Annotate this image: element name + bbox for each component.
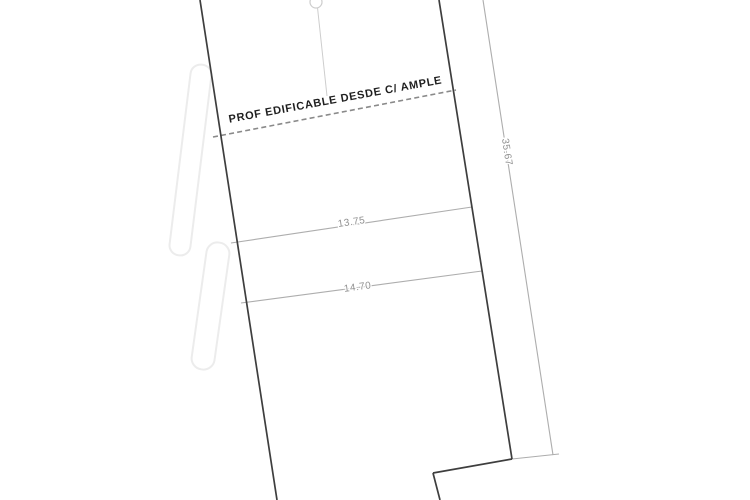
dimension-label-right-depth: 35.67: [499, 138, 514, 167]
label-balloon-circle: [310, 0, 322, 8]
dimension-label-lower-width: 14.70: [343, 280, 372, 295]
vegetation-outline-upper: [168, 63, 212, 256]
notch-witness-line: [512, 454, 559, 459]
parcel-boundary-step-top: [433, 459, 512, 473]
site-plan-drawing: PROF EDIFICABLE DESDE C/ AMPLE 13.75 14.…: [0, 0, 750, 500]
depth-dimension-line: [483, 0, 553, 455]
parcel-boundary-right: [439, 0, 512, 459]
leader-line: [317, 3, 327, 96]
site-plan-canvas: PROF EDIFICABLE DESDE C/ AMPLE 13.75 14.…: [0, 0, 750, 500]
buildable-depth-label: PROF EDIFICABLE DESDE C/ AMPLE: [228, 74, 443, 125]
parcel-boundary-step-side: [433, 473, 440, 500]
vegetation-outline-lower: [190, 241, 231, 371]
dimension-label-upper-width: 13.75: [337, 215, 366, 230]
